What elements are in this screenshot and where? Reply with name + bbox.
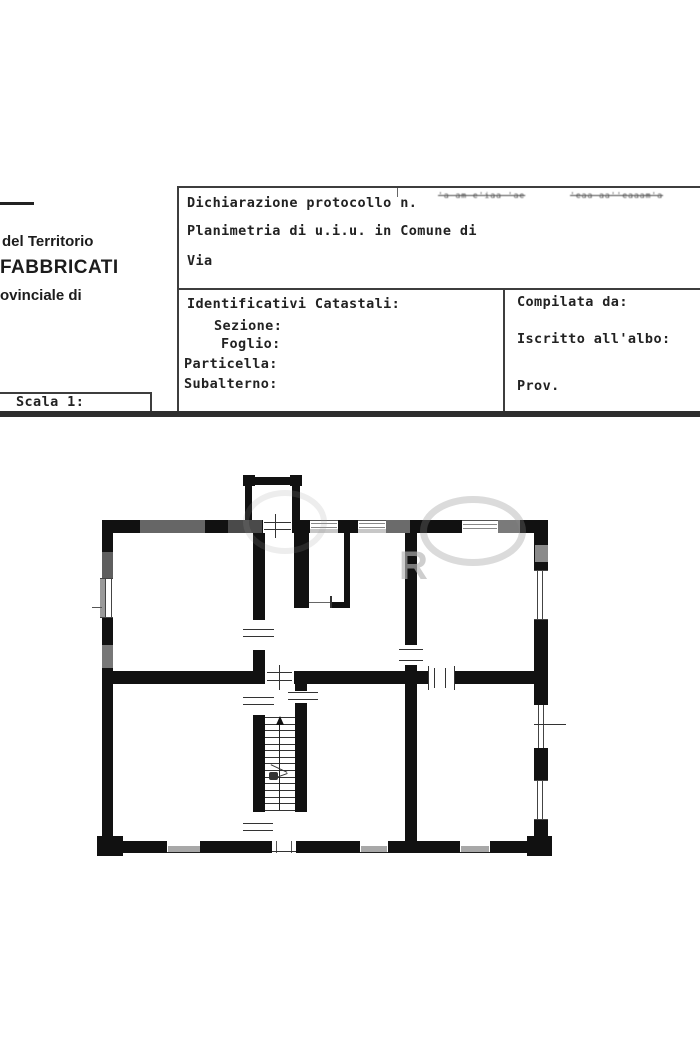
door-lower-center-line-2 <box>288 699 318 700</box>
mid-door-tick-4 <box>454 666 455 690</box>
window-right3-tick-bottom <box>534 819 548 820</box>
field-foglio: Foglio: <box>221 337 281 351</box>
watermark-patch-6 <box>102 552 113 578</box>
scale-box-right-border <box>150 392 152 413</box>
stair-tread <box>265 783 295 784</box>
window-left-outside-tick <box>92 607 102 608</box>
door-upper-right-line-1 <box>399 649 423 650</box>
window-top2-edge <box>358 520 386 521</box>
door-lower-left-line-2 <box>243 704 274 705</box>
panel-left-border <box>177 186 179 412</box>
window-right1-tick-bottom <box>534 619 548 620</box>
window-left-tick-top <box>100 578 113 579</box>
mid-wall-center <box>317 671 428 684</box>
stair-tread <box>265 810 295 811</box>
stair-center-line <box>279 717 280 810</box>
panel-row-divider <box>177 288 700 290</box>
stair-tread <box>265 790 295 791</box>
left-panel-top-border <box>0 202 34 205</box>
stair-tread <box>265 803 295 804</box>
window-right1-line-1 <box>537 570 538 620</box>
door-stair-bottom-line-2 <box>243 830 273 831</box>
stair-right-wall <box>295 703 307 812</box>
wall-right-3 <box>534 748 548 780</box>
field-iscritto-albo: Iscritto all'albo: <box>517 332 671 346</box>
window-left-tick-bottom <box>100 617 113 618</box>
window-right3-line-1 <box>537 780 538 820</box>
window-right3-tick-top <box>534 780 548 781</box>
field-prov: Prov. <box>517 379 560 393</box>
watermark-letter: R <box>399 544 428 589</box>
mid-wall-corridor-block <box>294 671 317 684</box>
door-upper-right-line-2 <box>399 660 423 661</box>
planimetria-label: Planimetria di u.i.u. in Comune di <box>187 224 477 238</box>
watermark-ring-2 <box>243 490 327 554</box>
door-stair-bottom-line-1 <box>243 823 273 824</box>
scanned-cadastral-document: del Territorio FABBRICATI ovinciale di S… <box>0 0 700 1050</box>
wall-right-2 <box>534 620 548 705</box>
threshold-2-sill <box>360 852 388 853</box>
window-right2-sill-tick <box>534 724 566 725</box>
door-upper-left-line-2 <box>243 636 274 637</box>
corridor-door-line-2 <box>267 680 292 681</box>
bathroom-bottom-wall <box>332 602 350 608</box>
corner-bottom-right <box>527 836 552 856</box>
mid-wall-right <box>455 671 534 684</box>
bathroom-door-tick <box>330 596 332 608</box>
threshold-3-sill <box>460 852 490 853</box>
door-lower-left-line-1 <box>243 697 274 698</box>
declaration-label: Dichiarazione protocollo n. <box>187 196 417 210</box>
window-right2-line-1 <box>538 705 539 748</box>
field-compilata-da: Compilata da: <box>517 295 628 309</box>
stair-tread <box>265 770 295 771</box>
window-right1-line-2 <box>542 570 543 620</box>
mid-door-tick-1 <box>428 666 429 690</box>
mid-door-tick-2 <box>434 668 435 688</box>
bathroom-right-wall <box>344 533 350 608</box>
wall-bottom-3 <box>296 841 360 853</box>
field-sezione: Sezione: <box>214 319 282 333</box>
window-top2-line-2 <box>359 527 385 528</box>
watermark-patch-3 <box>386 520 410 533</box>
window-right1-tick-top <box>534 570 548 571</box>
watermark-patch-5 <box>535 545 548 562</box>
protrusion-corner-left <box>243 475 255 486</box>
wall-bottom-2 <box>200 841 272 853</box>
corridor-door-line-1 <box>267 672 292 673</box>
stair-tread <box>265 750 295 751</box>
watermark-ring-1 <box>420 496 526 566</box>
stair-tread <box>265 737 295 738</box>
declaration-scribble-a: 'a am e'iaa 'ae <box>438 191 525 200</box>
watermark-patch-7 <box>102 645 113 668</box>
stair-tread <box>265 730 295 731</box>
field-particella: Particella: <box>184 357 278 371</box>
stair-tread <box>265 744 295 745</box>
stair-break-blob <box>269 772 278 780</box>
office-line-territorio: del Territorio <box>2 233 93 250</box>
stair-direction-arrow <box>276 716 284 725</box>
window-left-line-2 <box>111 578 112 618</box>
window-right2-line-2 <box>543 705 544 748</box>
mid-door-tick-3 <box>445 668 446 688</box>
threshold-1-sill <box>167 852 200 853</box>
mid-wall-left <box>113 671 265 684</box>
office-line-provincia: ovinciale di <box>0 287 82 304</box>
panel-bottom-thick-border <box>0 411 700 417</box>
window-top2-fill <box>358 529 386 533</box>
window-top2-line-1 <box>359 523 385 524</box>
door-upper-left-line-1 <box>243 629 274 630</box>
panel-top-border <box>177 186 700 188</box>
stair-right-wall-stub <box>295 684 307 691</box>
door-lower-center-line-1 <box>288 692 318 693</box>
cadastral-title: Identificativi Catastali: <box>187 297 400 311</box>
stair-treads <box>265 717 295 811</box>
office-line-fabbricati: FABBRICATI <box>0 257 119 279</box>
declaration-scribble-b: 'eaa aa''eaaam'a <box>570 191 663 200</box>
exit-door-sill <box>272 851 296 852</box>
wall-bottom-4 <box>388 841 460 853</box>
stair-tread <box>265 763 295 764</box>
bathroom-door-line <box>309 602 332 603</box>
stair-tread <box>265 757 295 758</box>
scale-label: Scala 1: <box>16 395 84 409</box>
corridor-door-symbol <box>279 665 280 690</box>
protrusion-corner-right <box>290 475 302 486</box>
center-right-wall-lower <box>405 684 417 841</box>
window-right3-line-2 <box>542 780 543 820</box>
field-subalterno: Subalterno: <box>184 377 278 391</box>
window-left-line-1 <box>105 578 106 618</box>
wall-top-3 <box>338 520 358 533</box>
stair-left-wall <box>253 715 265 812</box>
corner-bottom-left <box>97 836 123 856</box>
stair-tread <box>265 797 295 798</box>
via-label: Via <box>187 254 213 268</box>
watermark-patch-1 <box>140 520 205 533</box>
panel-column-divider <box>503 289 505 412</box>
